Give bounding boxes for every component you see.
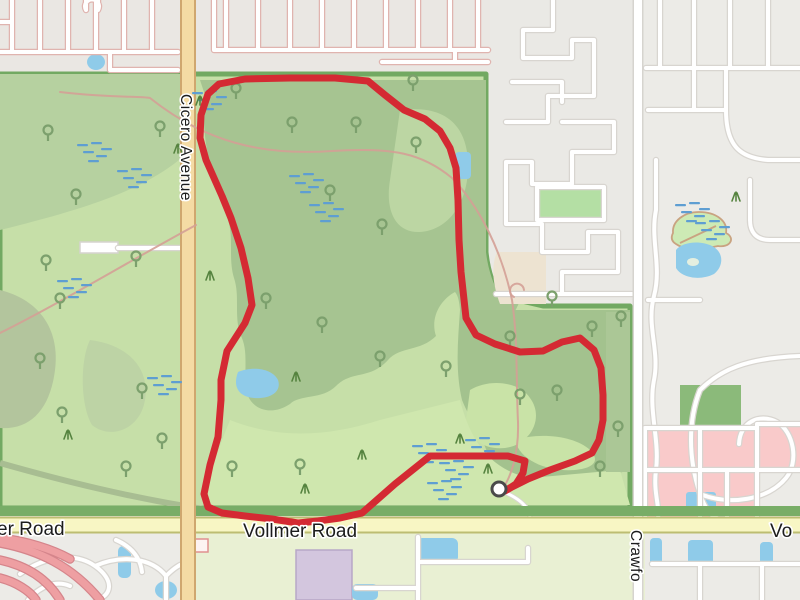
parking-lot xyxy=(80,242,118,253)
pond xyxy=(676,243,721,278)
road-label-vollmer-road-left: er Road xyxy=(0,519,65,540)
map-canvas[interactable]: Cicero Avenue Vollmer Road er Road Vo Cr… xyxy=(0,0,800,600)
map-viewport[interactable]: Cicero Avenue Vollmer Road er Road Vo Cr… xyxy=(0,0,800,600)
pond-island xyxy=(687,258,699,266)
road-label-vollmer-road: Vollmer Road xyxy=(243,521,357,542)
road-verge xyxy=(0,506,800,516)
road-label-crawford: Crawfo xyxy=(627,530,644,582)
green-parcel-north xyxy=(537,187,604,220)
road-label-cicero-avenue: Cicero Avenue xyxy=(177,94,194,201)
park-edge-band xyxy=(606,312,630,472)
pond xyxy=(87,54,105,70)
building-block xyxy=(296,550,352,600)
route-marker-circle[interactable] xyxy=(492,482,506,496)
road-label-vollmer-road-right: Vo xyxy=(770,521,792,542)
route-start-marker[interactable] xyxy=(492,482,506,496)
